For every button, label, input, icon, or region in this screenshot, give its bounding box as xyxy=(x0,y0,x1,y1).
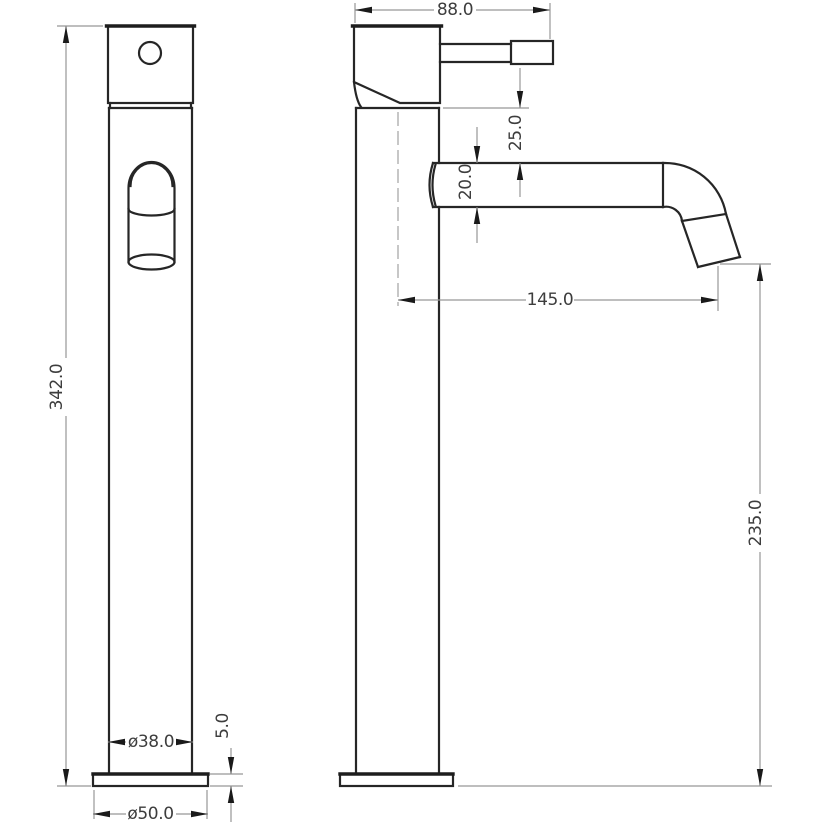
label-head-to-spout: 25.0 xyxy=(506,115,526,151)
label-outlet-height: 235.0 xyxy=(746,500,766,547)
label-base-diameter: ø50.0 xyxy=(127,804,173,824)
front-head-hole xyxy=(139,42,161,64)
front-handle-joint-arc xyxy=(129,209,175,216)
front-view xyxy=(93,26,208,786)
arrow-down-icon xyxy=(228,757,234,774)
front-handle-rim-arc xyxy=(131,163,173,186)
arrow-left-icon xyxy=(355,7,372,13)
dimension-spout-reach: 145.0 xyxy=(398,266,718,311)
label-overall-height: 342.0 xyxy=(47,364,67,411)
label-head-width: 88.0 xyxy=(437,0,473,20)
arrow-left-icon xyxy=(93,811,110,817)
front-handle xyxy=(129,162,175,269)
arrow-down-icon xyxy=(63,769,69,786)
arrow-up-icon xyxy=(228,786,234,803)
dimension-base-thickness: 5.0 xyxy=(210,713,243,822)
arrow-down-icon xyxy=(517,91,523,108)
front-base xyxy=(93,774,208,786)
arrow-down-icon xyxy=(474,146,480,163)
spout-root-cap-inner xyxy=(433,165,436,206)
side-head xyxy=(354,26,440,103)
side-handle-knurled-grip xyxy=(511,41,553,64)
drawing-canvas: 342.0 88.0 25.0 20.0 145.0 xyxy=(0,0,827,827)
dimension-body-diameter: ø38.0 xyxy=(108,732,193,752)
arrow-up-icon xyxy=(757,264,763,281)
label-spout-reach: 145.0 xyxy=(527,290,574,310)
arrow-right-icon xyxy=(191,811,208,817)
front-handle-end-ellipse xyxy=(129,255,175,270)
label-spout-tube: 20.0 xyxy=(456,164,476,200)
dimension-head-width: 88.0 xyxy=(355,0,550,39)
dimension-base-diameter: ø50.0 xyxy=(93,790,208,824)
side-handle-stem xyxy=(440,44,511,62)
arrow-left-icon xyxy=(398,297,415,303)
arrow-up-icon xyxy=(517,163,523,180)
label-body-diameter: ø38.0 xyxy=(128,732,174,752)
dimension-outlet-height: 235.0 xyxy=(458,264,772,786)
arrow-right-icon xyxy=(701,297,718,303)
spout-tip-joint-line xyxy=(682,214,726,221)
side-view xyxy=(340,26,740,786)
spout-elbow-outer-arc xyxy=(663,163,726,214)
arrow-down-icon xyxy=(757,769,763,786)
arrow-left-icon xyxy=(108,739,125,745)
side-base xyxy=(340,774,453,786)
technical-drawing: 342.0 88.0 25.0 20.0 145.0 xyxy=(0,0,827,827)
front-body xyxy=(109,108,192,774)
arrow-up-icon xyxy=(63,26,69,43)
label-base-thickness: 5.0 xyxy=(213,713,233,739)
spout-elbow-inner-arc xyxy=(663,207,682,221)
spout-outlet-face xyxy=(698,257,740,267)
dimension-spout-tube: 20.0 xyxy=(456,127,480,243)
dimension-overall-height: 342.0 xyxy=(47,26,103,786)
arrow-up-icon xyxy=(474,207,480,224)
arrow-right-icon xyxy=(533,7,550,13)
arrow-right-icon xyxy=(176,739,193,745)
